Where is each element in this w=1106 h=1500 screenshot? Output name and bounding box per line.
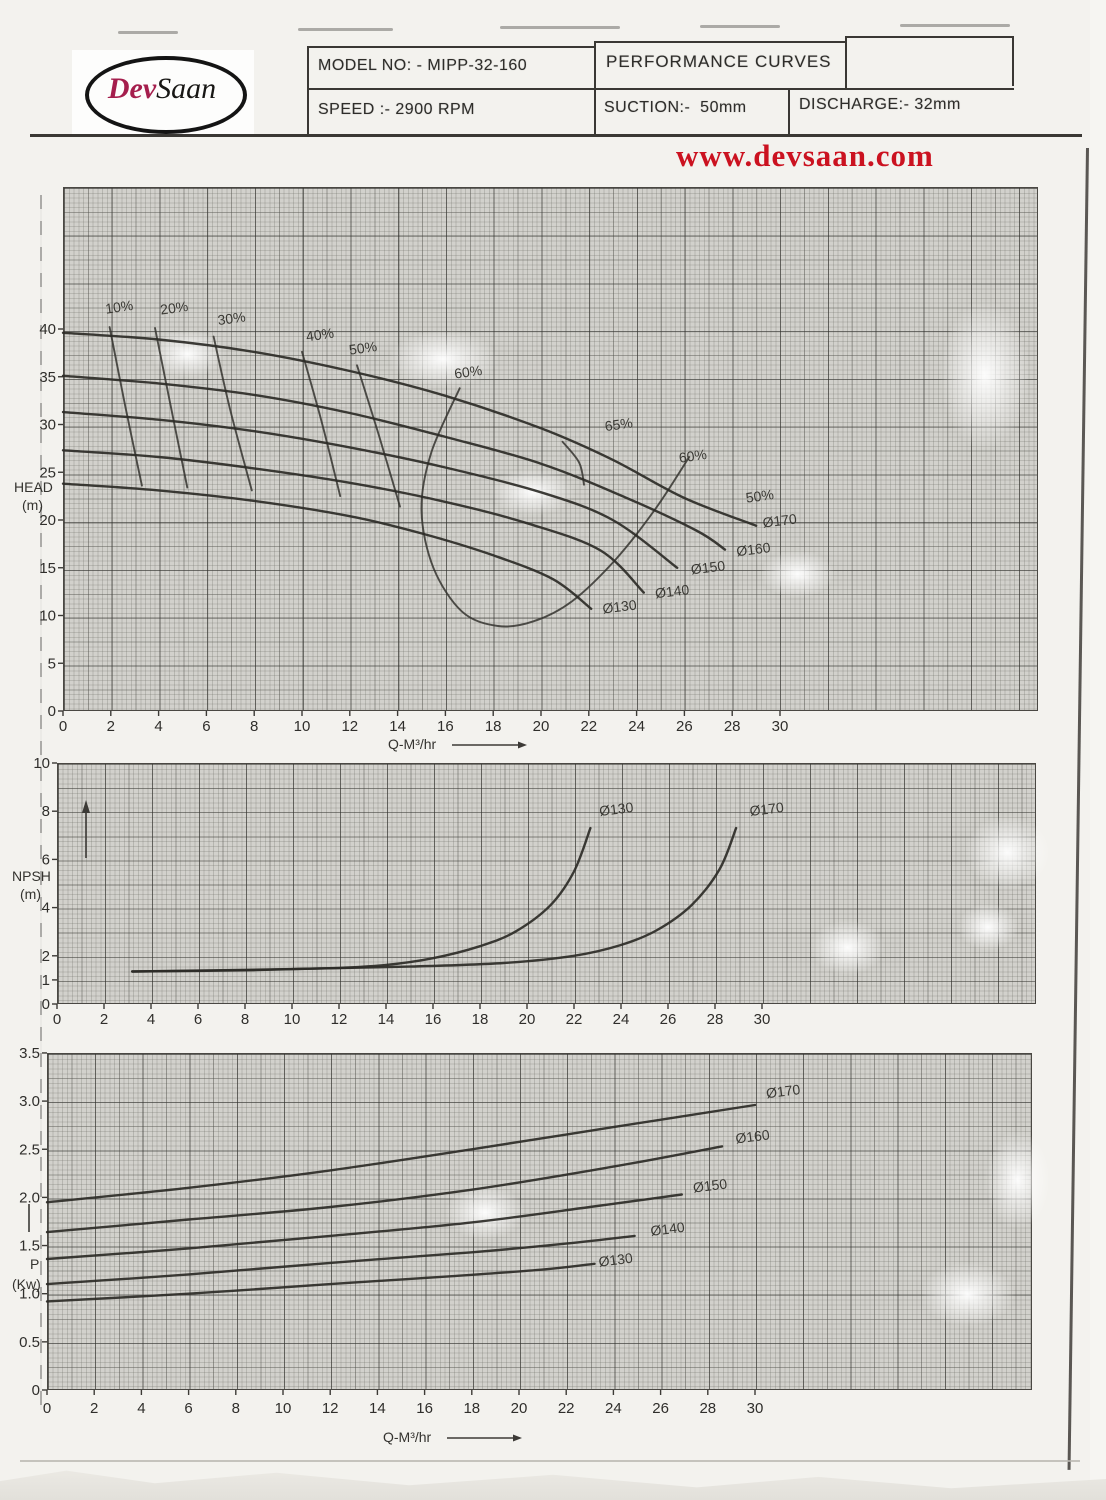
efficiency-label: 50% [348, 338, 378, 358]
x-tick-label: 12 [331, 1011, 348, 1028]
curve-label-Ø160: Ø160 [735, 1126, 771, 1146]
x-tick-label: 4 [147, 1011, 155, 1028]
head-chart: 0246810121416182022242628300510152025303… [14, 297, 798, 752]
x-tick-label: 22 [558, 1400, 575, 1417]
curve-label-Ø140: Ø140 [654, 581, 690, 601]
y-tick-label: 0 [48, 703, 56, 720]
y-axis-title: (m) [22, 497, 43, 513]
y-axis-title: (m) [20, 886, 41, 902]
y-axis-title: (Kw) [12, 1276, 41, 1292]
curve-label-Ø150: Ø150 [690, 557, 726, 577]
x-tick-label: 30 [747, 1400, 764, 1417]
y-tick-label: 2.5 [19, 1141, 40, 1158]
curve-Ø140 [63, 450, 644, 592]
x-tick-label: 28 [724, 718, 741, 735]
curve-label-Ø170: Ø170 [749, 799, 785, 819]
x-tick-label: 24 [628, 718, 645, 735]
efficiency-label: 40% [305, 325, 335, 345]
x-tick-label: 26 [660, 1011, 677, 1028]
power-chart: 02468101214161820222426283000.51.01.52.0… [12, 1045, 801, 1445]
y-tick-label: 15 [39, 560, 56, 577]
x-tick-label: 10 [275, 1400, 292, 1417]
x-tick-label: 2 [100, 1011, 108, 1028]
x-tick-label: 8 [250, 718, 258, 735]
curve-label-Ø140: Ø140 [650, 1219, 686, 1239]
y-tick-label: 2.0 [19, 1189, 40, 1206]
axis-arrow-head-icon [518, 742, 527, 749]
x-tick-label: 12 [322, 1400, 339, 1417]
x-tick-label: 22 [580, 718, 597, 735]
y-tick-label: 10 [39, 608, 56, 625]
x-tick-label: 4 [137, 1400, 145, 1417]
curve-label-Ø130: Ø130 [598, 1250, 634, 1270]
npsh-chart: 02468101214161820222426283001246810NPSH(… [12, 755, 785, 1028]
x-tick-label: 18 [463, 1400, 480, 1417]
y-axis-title: P [30, 1256, 39, 1272]
curve-label-Ø170: Ø170 [765, 1081, 801, 1101]
curve-Ø170 [63, 333, 756, 526]
x-tick-label: 28 [699, 1400, 716, 1417]
x-tick-label: 30 [754, 1011, 771, 1028]
y-tick-label: 4 [42, 900, 50, 917]
axis-arrow-head-icon [513, 1435, 522, 1442]
npsh-axis-arrow-head-icon [82, 800, 90, 813]
x-tick-label: 18 [485, 718, 502, 735]
curve-Ø160 [63, 376, 725, 550]
x-tick-label: 14 [369, 1400, 386, 1417]
y-tick-label: 5 [48, 655, 56, 672]
x-tick-label: 20 [533, 718, 550, 735]
y-axis-title: HEAD [14, 479, 53, 495]
efficiency-line-10% [110, 327, 142, 486]
scanned-performance-curves-page: DevSaan MODEL NO: - MIPP-32-160 PERFORMA… [0, 0, 1106, 1500]
x-tick-label: 12 [341, 718, 358, 735]
curve-Ø130 [63, 484, 591, 609]
efficiency-line-20% [155, 328, 187, 488]
curve-Ø160 [47, 1146, 722, 1232]
efficiency-line-40% [302, 352, 340, 496]
curve-label-Ø130: Ø130 [598, 799, 634, 819]
y-tick-label: 6 [42, 851, 50, 868]
efficiency-label: 50% [745, 486, 775, 506]
y-tick-label: 35 [39, 369, 56, 386]
curve-label-Ø150: Ø150 [692, 1175, 728, 1195]
curve-Ø170 [132, 828, 736, 971]
x-tick-label: 10 [294, 718, 311, 735]
curve-label-Ø160: Ø160 [735, 539, 771, 559]
x-tick-label: 6 [202, 718, 210, 735]
x-tick-label: 26 [676, 718, 693, 735]
x-axis-title: Q-M³/hr [383, 1429, 432, 1445]
efficiency-label: 65% [604, 414, 634, 434]
y-tick-label: 0 [42, 996, 50, 1013]
y-tick-label: 8 [42, 803, 50, 820]
x-tick-label: 16 [425, 1011, 442, 1028]
y-tick-label: 2 [42, 948, 50, 965]
y-tick-label: 30 [39, 417, 56, 434]
curve-Ø130 [47, 1264, 595, 1302]
x-tick-label: 24 [605, 1400, 622, 1417]
curve-Ø140 [47, 1236, 635, 1284]
y-tick-label: 10 [33, 755, 50, 772]
x-tick-label: 20 [519, 1011, 536, 1028]
x-tick-label: 8 [241, 1011, 249, 1028]
y-tick-label: 3.5 [19, 1045, 40, 1062]
y-tick-label: 1.5 [19, 1238, 40, 1255]
x-tick-label: 18 [472, 1011, 489, 1028]
x-tick-label: 4 [154, 718, 162, 735]
efficiency-label: 60% [678, 446, 708, 466]
x-tick-label: 2 [90, 1400, 98, 1417]
x-tick-label: 24 [613, 1011, 630, 1028]
x-tick-label: 16 [437, 718, 454, 735]
x-tick-label: 14 [378, 1011, 395, 1028]
curve-label-Ø130: Ø130 [602, 596, 638, 616]
x-axis-title: Q-M³/hr [388, 736, 437, 752]
y-tick-label: 40 [39, 321, 56, 338]
y-tick-label: 1 [42, 972, 50, 989]
x-tick-label: 26 [652, 1400, 669, 1417]
curve-Ø130 [132, 828, 590, 971]
x-tick-label: 8 [232, 1400, 240, 1417]
charts-overlay: 0246810121416182022242628300510152025303… [0, 0, 1106, 1500]
efficiency-label: 60% [453, 362, 483, 382]
y-tick-label: 3.0 [19, 1093, 40, 1110]
efficiency-label: 30% [217, 308, 247, 328]
x-tick-label: 6 [194, 1011, 202, 1028]
x-tick-label: 30 [772, 718, 789, 735]
efficiency-label: 20% [159, 298, 189, 318]
curve-Ø170 [47, 1105, 755, 1202]
x-tick-label: 6 [184, 1400, 192, 1417]
y-axis-title: NPSH [12, 868, 51, 884]
x-tick-label: 16 [416, 1400, 433, 1417]
y-tick-label: 0 [32, 1382, 40, 1399]
x-tick-label: 14 [389, 718, 406, 735]
x-tick-label: 28 [707, 1011, 724, 1028]
x-tick-label: 22 [566, 1011, 583, 1028]
x-tick-label: 0 [43, 1400, 51, 1417]
curve-label-Ø170: Ø170 [762, 511, 798, 531]
x-tick-label: 2 [107, 718, 115, 735]
y-tick-label: 20 [39, 512, 56, 529]
y-tick-label: 0.5 [19, 1334, 40, 1351]
efficiency-label: 10% [104, 297, 134, 317]
x-tick-label: 10 [284, 1011, 301, 1028]
x-tick-label: 20 [511, 1400, 528, 1417]
x-tick-label: 0 [53, 1011, 61, 1028]
x-tick-label: 0 [59, 718, 67, 735]
